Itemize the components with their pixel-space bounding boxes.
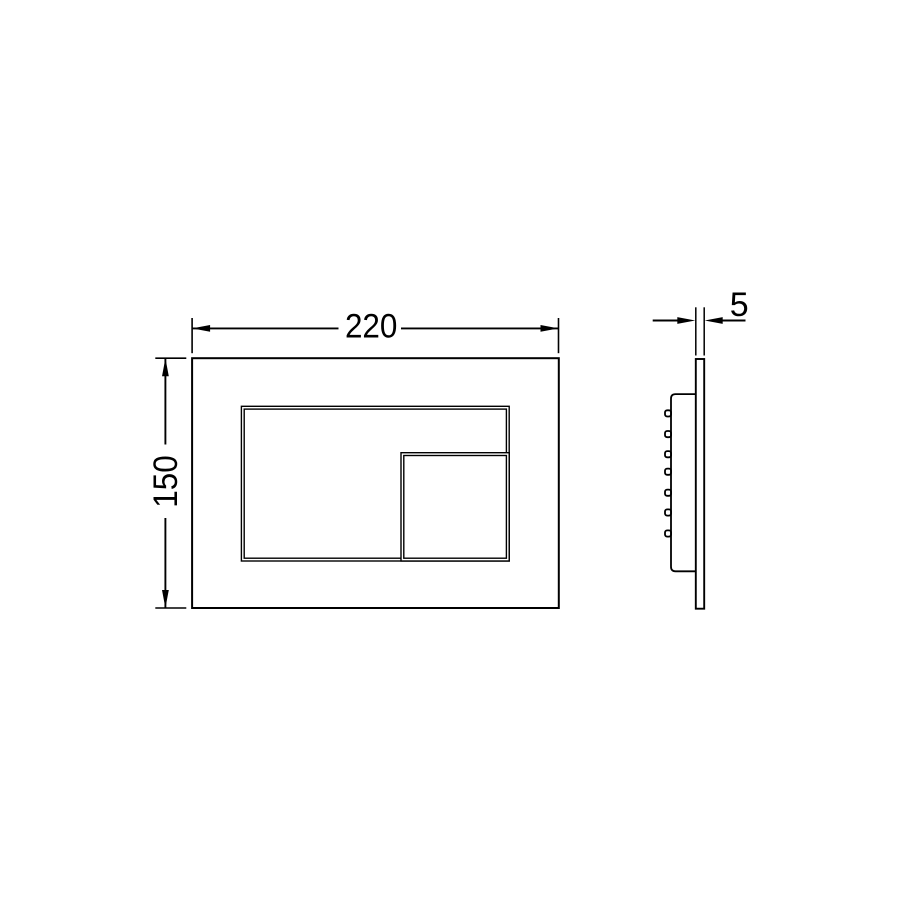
svg-text:150: 150 (147, 455, 185, 508)
svg-text:5: 5 (730, 286, 749, 324)
svg-text:220: 220 (345, 307, 398, 345)
